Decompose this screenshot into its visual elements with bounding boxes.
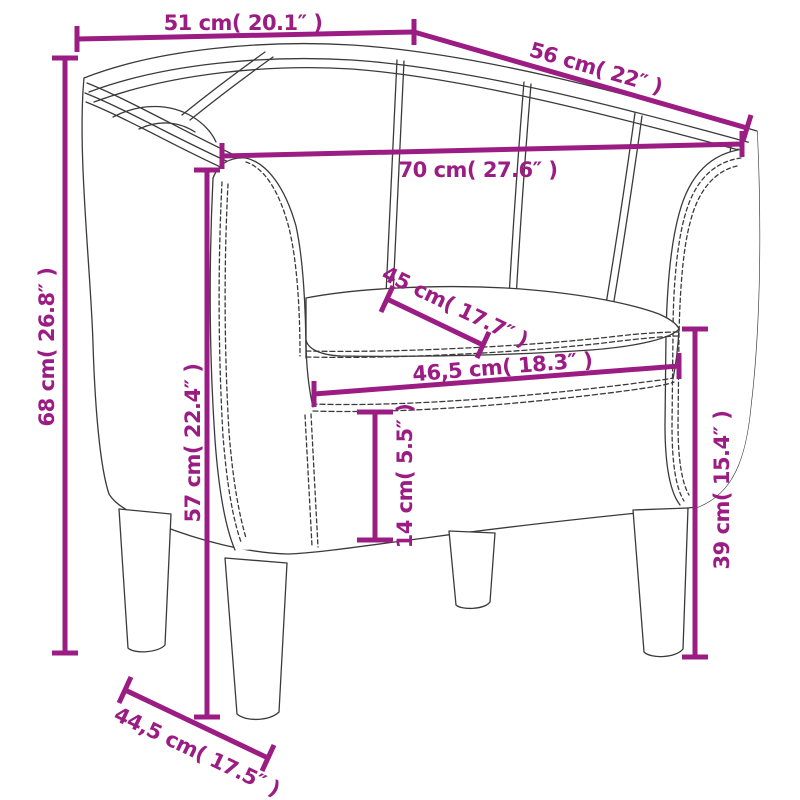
label-top-width: 51 cm( 20.1″ ) [164,11,323,35]
dimension-diagram: 51 cm( 20.1″ ) 56 cm( 22″ ) 70 cm( 27.6″… [0,0,800,800]
leg-front-left [225,558,287,719]
label-back-inner-width: 70 cm( 27.6″ ) [399,158,558,182]
leg-front-right [633,508,688,657]
label-armrest-height: 57 cm( 22.4″ ) [181,364,205,523]
label-seat-height: 39 cm( 15.4″ ) [710,411,734,570]
label-total-height: 68 cm( 26.8″ ) [35,268,59,427]
diagram-canvas: 51 cm( 20.1″ ) 56 cm( 22″ ) 70 cm( 27.6″… [0,0,800,800]
label-cushion-to-base: 14 cm( 5.5″ ) [393,404,417,549]
leg-back-right [449,531,495,608]
leg-back-left [119,509,171,652]
